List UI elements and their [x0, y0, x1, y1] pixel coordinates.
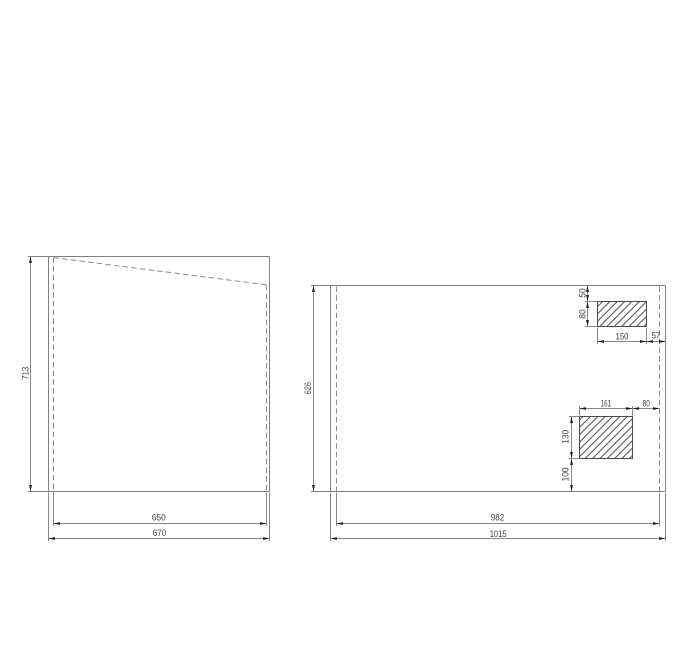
svg-text:1015: 1015	[490, 529, 507, 539]
svg-text:626: 626	[303, 382, 313, 394]
svg-text:100: 100	[561, 467, 571, 481]
svg-text:713: 713	[20, 367, 30, 380]
svg-text:57: 57	[651, 331, 660, 341]
svg-text:150: 150	[616, 332, 629, 342]
svg-text:982: 982	[491, 513, 504, 523]
svg-text:161: 161	[601, 399, 611, 409]
svg-text:80: 80	[643, 399, 650, 409]
svg-text:670: 670	[153, 528, 166, 538]
svg-text:50: 50	[577, 288, 587, 298]
svg-text:130: 130	[561, 430, 571, 444]
svg-text:650: 650	[152, 513, 166, 523]
svg-text:80: 80	[577, 309, 587, 319]
